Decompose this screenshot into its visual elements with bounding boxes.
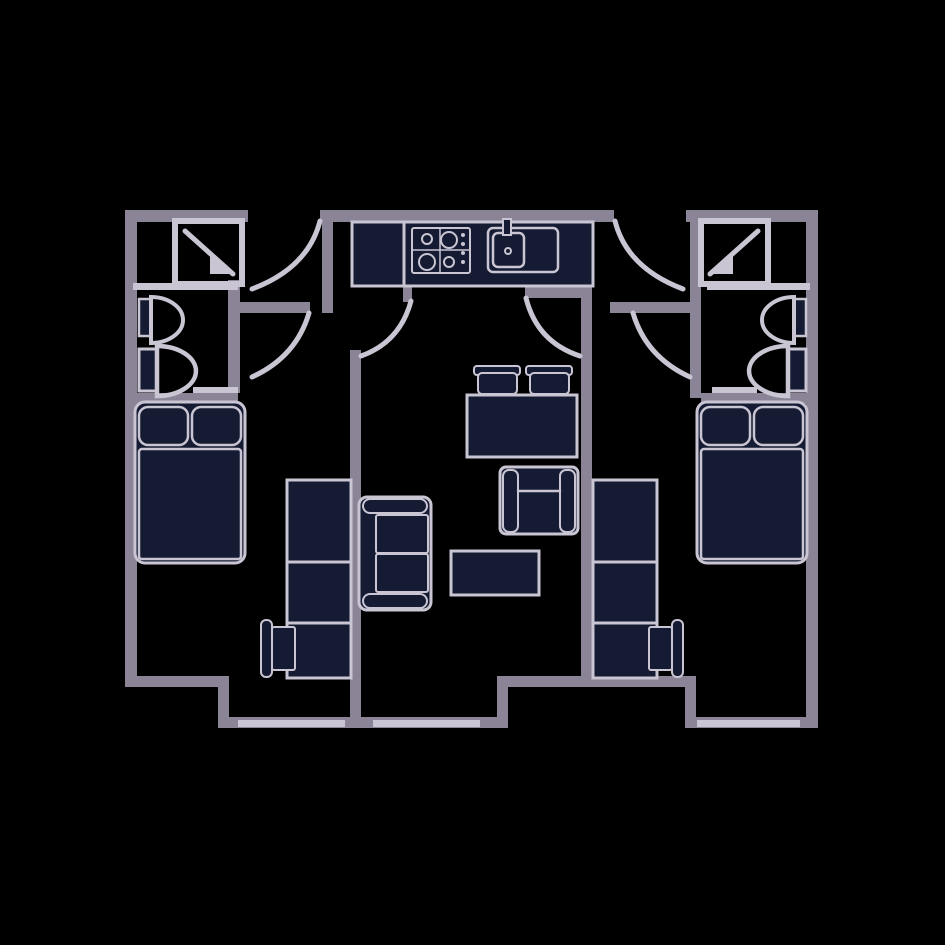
threshold-bathroom-right [712,387,757,393]
shower-right-door-wedge [711,252,733,274]
dining-chair-2-seat [530,373,569,394]
door-arc-bedroom-left [252,313,309,377]
sofa-cushion-top [376,515,428,553]
armchair-arm-left [503,470,518,532]
door-leaf-living-right [525,287,590,298]
wall-hall-left-east [322,210,333,313]
stove-knob-2 [461,242,465,246]
stove-knob-3 [461,251,465,255]
basin-left-bowl [151,297,183,343]
window-bottom-right [697,720,800,727]
wall-top-middle [320,210,614,222]
desk-chair-right-back [672,620,683,677]
dining-chair-1-seat [478,373,517,394]
bed-left-pillow-1 [139,407,188,445]
window-bottom-left [238,720,345,727]
desk-chair-left-back [261,620,272,677]
stove-knob-4 [461,260,465,264]
toilet-left-bowl [157,346,196,396]
floor-plan-drawing [0,0,945,945]
window-bottom-center [373,720,480,727]
shower-left-door-wedge [210,252,232,274]
wall-hall-left-south [230,302,310,313]
bed-right-mattress [701,449,803,559]
door-arc-entry-left [252,221,320,289]
armchair-arm-right [560,470,575,532]
desk-chair-left-seat [272,627,295,670]
bed-right-pillow-1 [701,407,750,445]
door-arc-entry-right [615,221,683,289]
toilet-left-tank [139,349,157,391]
wall-bottom-left [125,676,229,687]
sofa-arm-bottom [363,594,427,608]
coffee-table [451,551,539,595]
bed-left-pillow-2 [192,407,241,445]
wall-hall-right-south [610,302,691,313]
wall-wc-left-east [228,280,240,393]
floor-plan [0,0,945,945]
bed-left-mattress [139,449,241,559]
sofa-arm-top [363,499,427,513]
bed-right-pillow-2 [754,407,803,445]
shower-right-glass [710,231,758,274]
door-arc-living-right [526,298,580,356]
desk-chair-right-seat [649,627,672,670]
wall-living-bedroom-right [581,287,592,687]
stove-knob-1 [461,233,465,237]
shower-left-glass [185,231,233,274]
basin-right-bowl [762,297,794,343]
wardrobe-desk-right [593,480,657,678]
toilet-right-tank [788,349,806,391]
wardrobe-desk-left [287,480,351,678]
door-arc-living-left [361,301,411,356]
door-arc-bedroom-right [633,313,690,377]
threshold-bathroom-left [193,387,238,393]
dining-table [467,395,577,457]
sink-faucet [503,219,511,235]
sofa-cushion-bottom [376,554,428,592]
